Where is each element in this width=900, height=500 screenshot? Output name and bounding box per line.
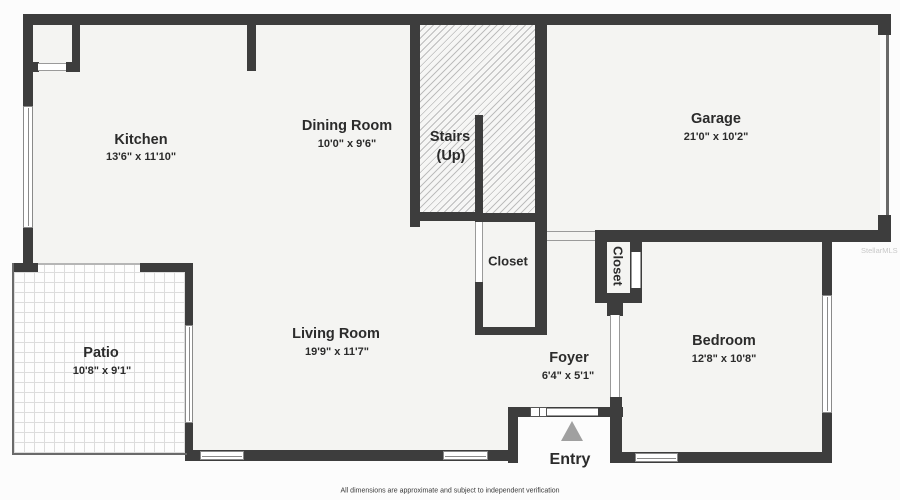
entry-door-opening [547, 408, 598, 416]
entry-label: Entry [550, 451, 591, 469]
entry-door-marker [530, 407, 547, 417]
patio-sliding-door [185, 325, 193, 423]
room-label-dining: Dining Room [302, 118, 392, 134]
room-dims-garage: 21'0" x 10'2" [684, 131, 749, 143]
living-room-window-1 [200, 451, 244, 460]
room-label-stairs: Stairs [430, 129, 470, 145]
patio-edge-top-open [38, 263, 140, 265]
hall-closet-door-opening [475, 222, 483, 282]
room-label-living: Living Room [292, 326, 380, 342]
disclaimer-text: All dimensions are approximate and subje… [340, 488, 559, 495]
foyer-bedroom-doorway [610, 315, 620, 397]
wall-patio-top-right [140, 263, 193, 272]
wall-kitchen-dining-divider [247, 25, 256, 71]
wall-stairs-right [535, 14, 547, 335]
room-dims-living: 19'9" x 11'7" [305, 346, 369, 358]
room-label-kitchen: Kitchen [114, 132, 167, 148]
kitchen-window [23, 106, 33, 228]
pantry-door-opening [38, 63, 66, 71]
garage-to-foyer-door-opening [547, 231, 595, 241]
room-label-stairs-up: (Up) [437, 148, 466, 164]
entry-direction-icon [561, 421, 583, 441]
bedroom-right-window [822, 295, 832, 413]
room-label-hall-closet: Closet [488, 254, 528, 269]
wall-bedroom-closet-bottom [595, 293, 642, 303]
wall-garage-door-jamb-bottom [878, 215, 891, 242]
room-dims-dining: 10'0" x 9'6" [318, 138, 376, 150]
room-label-bedroom-closet: Closet [611, 246, 626, 286]
wall-garage-door-jamb-top [878, 14, 891, 35]
room-label-bedroom: Bedroom [692, 333, 756, 349]
room-label-patio: Patio [83, 345, 118, 361]
wall-patio-top-left [12, 263, 38, 272]
bedroom-bottom-window [635, 453, 678, 462]
room-dims-foyer: 6'4" x 5'1" [542, 370, 594, 382]
patio-edge-left [12, 263, 14, 455]
room-label-foyer: Foyer [549, 350, 589, 366]
wall-pantry-bottom-right [66, 62, 80, 72]
patio-edge-bottom [12, 453, 187, 455]
room-dims-kitchen: 13'6" x 11'10" [106, 151, 176, 163]
room-dims-bedroom: 12'8" x 10'8" [692, 353, 757, 365]
floor-plan: Kitchen 13'6" x 11'10" Dining Room 10'0"… [0, 0, 900, 500]
wall-top-exterior [23, 14, 888, 25]
room-dims-patio: 10'8" x 9'1" [73, 365, 131, 377]
living-room-window-2 [443, 451, 488, 460]
wall-hall-closet-bottom [475, 327, 547, 335]
room-label-garage: Garage [691, 111, 741, 127]
bedroom-closet-door-opening [631, 252, 641, 288]
watermark-text: StellarMLS [861, 246, 898, 255]
wall-stairs-left [410, 25, 420, 227]
garage-door-line [886, 35, 889, 215]
floor-kitchen-strip [33, 230, 193, 263]
wall-stairs-bottom-left [410, 212, 483, 221]
